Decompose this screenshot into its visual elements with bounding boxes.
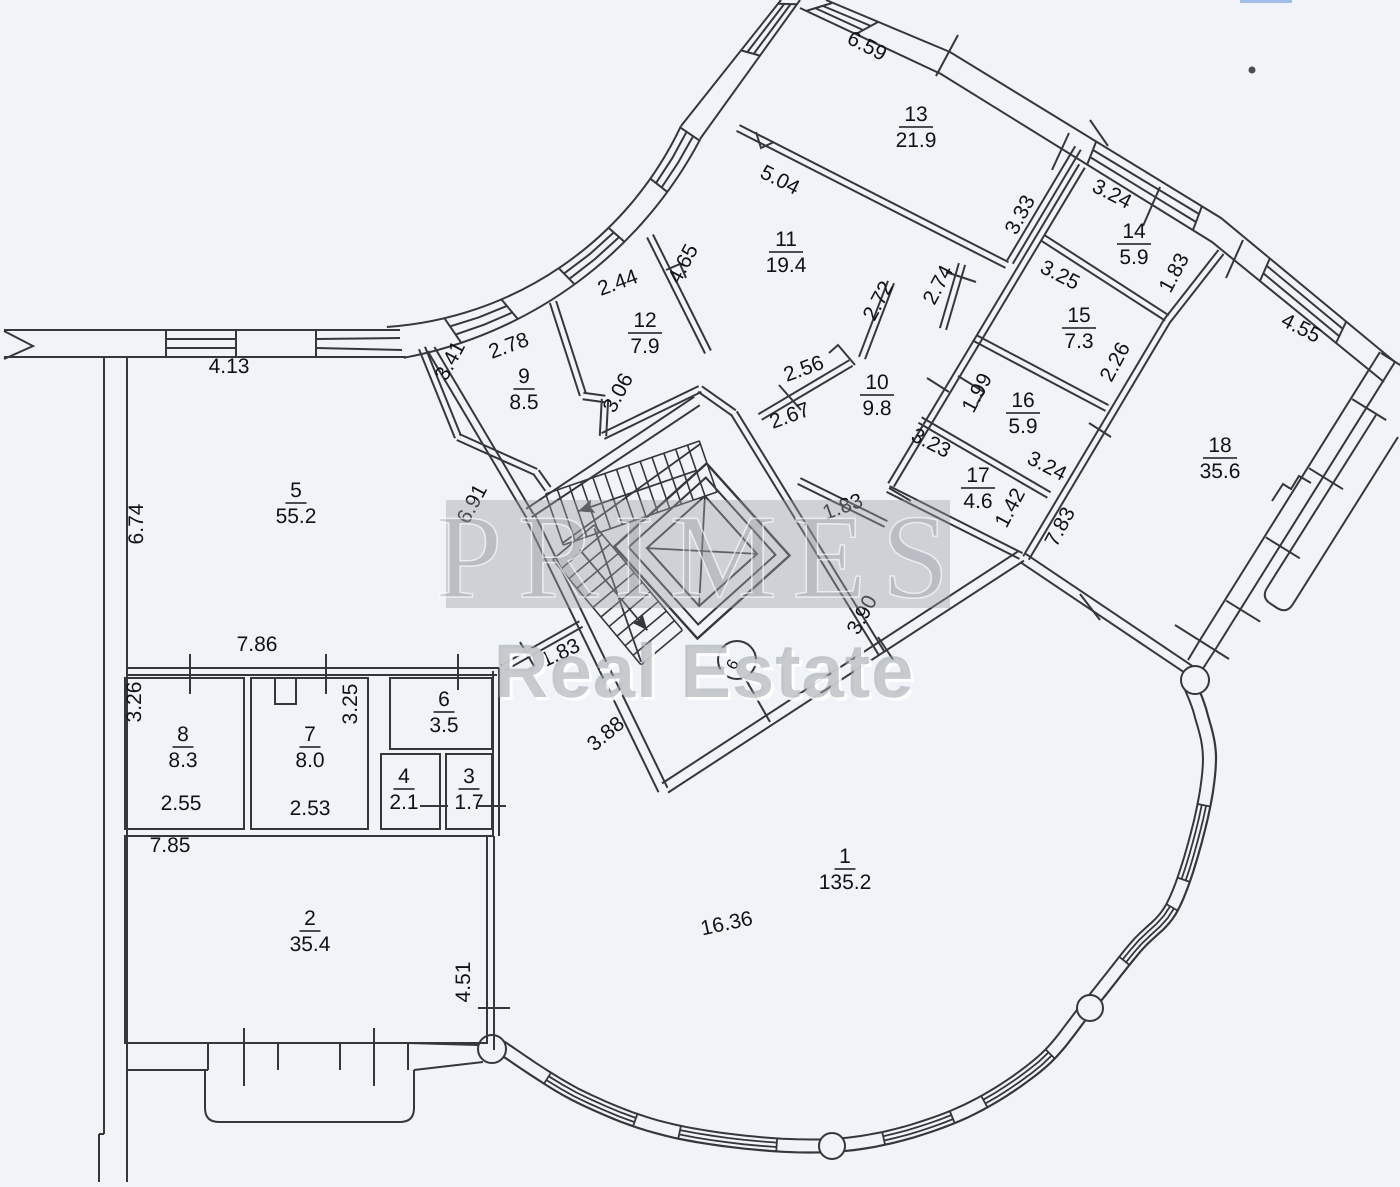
svg-text:15: 15 bbox=[1067, 304, 1090, 327]
svg-text:11: 11 bbox=[775, 228, 797, 251]
svg-text:19.4: 19.4 bbox=[766, 254, 807, 277]
svg-text:135.2: 135.2 bbox=[819, 871, 872, 894]
svg-text:8.0: 8.0 bbox=[295, 749, 324, 772]
svg-text:4: 4 bbox=[398, 765, 410, 788]
svg-text:3.5: 3.5 bbox=[429, 714, 458, 737]
svg-text:Real Estate: Real Estate bbox=[494, 629, 915, 714]
svg-text:3: 3 bbox=[463, 765, 475, 788]
svg-text:2.1: 2.1 bbox=[389, 791, 418, 814]
svg-text:6: 6 bbox=[438, 688, 450, 711]
svg-text:7: 7 bbox=[304, 723, 316, 746]
svg-text:55.2: 55.2 bbox=[276, 505, 317, 528]
svg-text:17: 17 bbox=[966, 464, 989, 487]
svg-text:4.13: 4.13 bbox=[209, 355, 250, 378]
svg-text:5.9: 5.9 bbox=[1119, 246, 1148, 269]
svg-text:9: 9 bbox=[518, 365, 530, 388]
svg-text:8.5: 8.5 bbox=[509, 391, 538, 414]
svg-text:8.3: 8.3 bbox=[168, 749, 197, 772]
svg-text:1: 1 bbox=[839, 845, 851, 868]
svg-text:18: 18 bbox=[1208, 434, 1231, 457]
svg-text:4.6: 4.6 bbox=[963, 490, 992, 513]
svg-text:1.7: 1.7 bbox=[454, 791, 483, 814]
svg-text:5: 5 bbox=[290, 479, 302, 502]
svg-text:16: 16 bbox=[1011, 389, 1034, 412]
svg-text:35.4: 35.4 bbox=[290, 933, 331, 956]
svg-text:4.51: 4.51 bbox=[452, 962, 475, 1003]
svg-text:6.74: 6.74 bbox=[125, 503, 148, 544]
svg-text:7.9: 7.9 bbox=[630, 335, 659, 358]
svg-text:3.26: 3.26 bbox=[123, 682, 146, 723]
svg-text:21.9: 21.9 bbox=[896, 129, 937, 152]
svg-text:3.25: 3.25 bbox=[339, 684, 362, 725]
svg-text:7.85: 7.85 bbox=[150, 834, 191, 857]
svg-text:2.55: 2.55 bbox=[161, 792, 202, 815]
svg-text:9.8: 9.8 bbox=[862, 397, 891, 420]
svg-text:5.9: 5.9 bbox=[1008, 415, 1037, 438]
svg-text:35.6: 35.6 bbox=[1200, 460, 1241, 483]
svg-text:2: 2 bbox=[304, 907, 316, 930]
svg-text:7.86: 7.86 bbox=[237, 633, 278, 656]
svg-text:14: 14 bbox=[1122, 220, 1146, 243]
svg-text:12: 12 bbox=[633, 309, 656, 332]
svg-text:8: 8 bbox=[177, 723, 189, 746]
svg-text:7.3: 7.3 bbox=[1064, 330, 1093, 353]
svg-text:10: 10 bbox=[865, 371, 888, 394]
svg-text:13: 13 bbox=[904, 103, 927, 126]
svg-text:2.53: 2.53 bbox=[290, 797, 331, 820]
svg-text:PRIMES: PRIMES bbox=[435, 490, 964, 623]
